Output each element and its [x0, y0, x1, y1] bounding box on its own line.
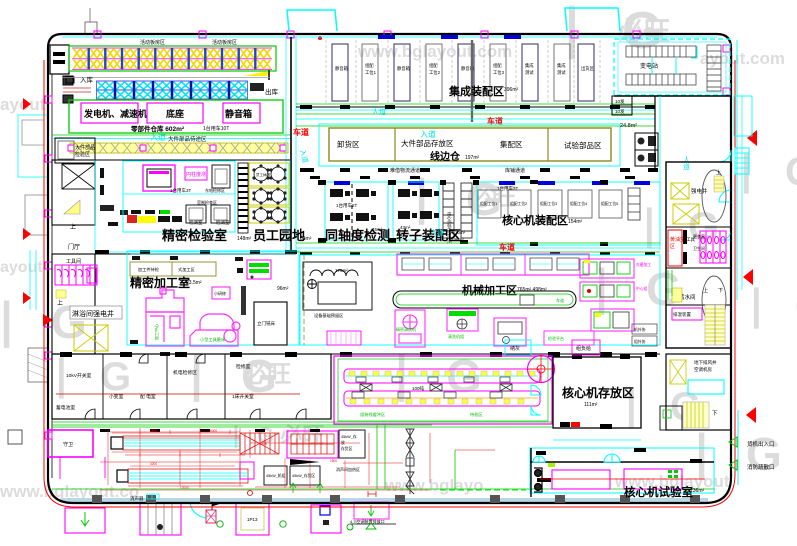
svg-text:检验平台: 检验平台 [548, 335, 564, 341]
svg-text:门厅: 门厅 [68, 243, 80, 251]
svg-text:线边仓: 线边仓 [430, 150, 461, 163]
svg-text:小研修: 小研修 [214, 290, 226, 296]
svg-text:待检区: 待检区 [470, 411, 483, 418]
svg-text:检验区: 检验区 [75, 151, 90, 158]
svg-text:组配: 组配 [429, 62, 438, 69]
svg-text:入道: 入道 [150, 132, 166, 142]
svg-text:活动板房区: 活动板房区 [140, 39, 165, 46]
svg-text:3200: 3200 [150, 462, 157, 466]
svg-text:发电机、减速机: 发电机、减速机 [83, 108, 147, 119]
svg-text:底座: 底座 [166, 108, 184, 119]
svg-text:蓄电池室: 蓄电池室 [56, 404, 75, 411]
svg-text:下: 下 [712, 410, 718, 417]
svg-text:集成: 集成 [525, 62, 534, 69]
svg-text:存货区: 存货区 [341, 446, 353, 451]
svg-text:组配工位5: 组配工位5 [601, 201, 618, 206]
svg-text:ayout: ayout [0, 259, 43, 276]
svg-text:人道: 人道 [430, 228, 444, 237]
svg-text:试验部品区: 试验部品区 [564, 140, 602, 150]
svg-text:45kW_存: 45kW_存 [341, 434, 357, 439]
svg-text:工位1: 工位1 [365, 69, 377, 75]
svg-text:24.8m²: 24.8m² [620, 123, 637, 129]
svg-text:静音箱: 静音箱 [335, 65, 349, 72]
svg-text:大件部品: 大件部品 [75, 144, 95, 151]
svg-text:工位2: 工位2 [429, 69, 441, 75]
svg-text:检修室: 检修室 [236, 363, 251, 370]
svg-text:消防疏散口: 消防疏散口 [747, 463, 775, 471]
svg-text:消声器: 消声器 [130, 495, 144, 502]
svg-text:96m²: 96m² [277, 286, 289, 292]
svg-text:组外协: 组外协 [634, 339, 646, 344]
svg-text:核心机装配区: 核心机装配区 [502, 213, 568, 227]
svg-text:工位3: 工位3 [493, 69, 505, 75]
svg-text:黄油宝: 黄油宝 [670, 236, 685, 243]
svg-text:组装线缓冲区: 组装线缓冲区 [360, 411, 385, 418]
svg-text:154m²: 154m² [568, 219, 583, 225]
svg-text:零部件仓库 602m²: 零部件仓库 602m² [130, 124, 185, 133]
svg-text:⎸G: ⎸G [754, 285, 797, 329]
svg-text:1台用车3T: 1台用车3T [170, 187, 192, 194]
svg-text:www.bglayo: www.bglayo [384, 476, 484, 495]
svg-text:检测室: 检测室 [189, 219, 203, 226]
svg-text:组配: 组配 [493, 62, 502, 69]
svg-text:车道: 车道 [487, 116, 503, 126]
svg-text:10发: 10发 [615, 98, 625, 105]
svg-text:检测室: 检测室 [216, 219, 230, 226]
svg-text:测试: 测试 [557, 69, 566, 76]
svg-text:148m²: 148m² [237, 236, 252, 242]
svg-text:10kV开关室: 10kV开关室 [66, 372, 92, 379]
svg-text:组配工位2: 组配工位2 [510, 201, 527, 206]
svg-text:ayout.com: ayout.com [700, 49, 785, 68]
svg-text:空调机房: 空调机房 [694, 366, 712, 373]
svg-text:ayout: ayout [0, 95, 46, 114]
svg-text:人道: 人道 [372, 107, 386, 116]
svg-text:加工件待检: 加工件待检 [138, 266, 160, 273]
svg-text:136m²: 136m² [690, 488, 705, 494]
svg-text:4500: 4500 [150, 429, 157, 433]
svg-text:上: 上 [703, 287, 708, 294]
svg-text:组配工位1: 组配工位1 [480, 201, 497, 206]
svg-text:入道: 入道 [420, 129, 436, 139]
svg-text:45kW_存货区: 45kW_存货区 [292, 473, 315, 478]
svg-text:中心组: 中心组 [636, 286, 648, 291]
svg-text:111m²: 111m² [584, 402, 598, 408]
svg-text:23.5m²: 23.5m² [186, 280, 202, 286]
svg-text:精密清洗机: 精密清洗机 [396, 326, 416, 332]
svg-text:员工休闲: 员工休闲 [256, 172, 270, 177]
svg-text:100吨: 100吨 [412, 385, 425, 391]
svg-text:1800: 1800 [330, 459, 337, 463]
svg-text:静音箱: 静音箱 [225, 108, 252, 119]
svg-text:纳灰: 纳灰 [510, 345, 520, 352]
svg-text:淋浴间强电井: 淋浴间强电井 [72, 309, 114, 318]
svg-text:入库: 入库 [80, 75, 94, 84]
svg-text:出货区: 出货区 [581, 65, 595, 72]
svg-text:下: 下 [718, 288, 723, 294]
svg-text:加工中心: 加工中心 [153, 324, 159, 340]
svg-text:东帕检修区: 东帕检修区 [205, 187, 225, 193]
svg-text:货机出入口: 货机出入口 [747, 440, 775, 448]
svg-text:集配区: 集配区 [500, 139, 523, 149]
svg-text:上: 上 [70, 223, 76, 231]
svg-text:円柱度测: 円柱度测 [186, 171, 206, 178]
svg-text:上: 上 [716, 169, 721, 176]
svg-text:工具间: 工具间 [66, 258, 81, 265]
svg-text:守卫: 守卫 [63, 441, 73, 448]
svg-text:组负给: 组负给 [576, 345, 591, 352]
svg-text:大件部品存放区: 大件部品存放区 [401, 138, 454, 148]
svg-text:1台用车2T: 1台用车2T [336, 202, 358, 209]
svg-text:测试: 测试 [525, 69, 534, 76]
svg-text:组配: 组配 [365, 62, 374, 69]
svg-text:静音箱: 静音箱 [397, 65, 411, 72]
svg-text:出库: 出库 [265, 87, 279, 96]
svg-text:⎸G: ⎸G [744, 150, 797, 194]
svg-text:员工园地: 员工园地 [253, 228, 305, 243]
svg-text:卸货区: 卸货区 [337, 139, 360, 149]
svg-text:必旺: 必旺 [618, 16, 670, 46]
svg-text:强电井: 强电井 [691, 187, 708, 195]
svg-text:车道: 车道 [556, 297, 564, 303]
svg-text:4.7t空调装置排放口: 4.7t空调装置排放口 [350, 518, 385, 524]
svg-text:1台用车10T: 1台用车10T [203, 125, 229, 132]
svg-text:大件部品待途区: 大件部品待途区 [168, 135, 207, 143]
svg-text:卫生间: 卫生间 [693, 245, 705, 251]
svg-text:核心机存放区: 核心机存放区 [562, 385, 634, 400]
svg-text:清洗机组: 清洗机组 [448, 333, 464, 339]
svg-text:6000: 6000 [210, 429, 217, 433]
svg-text:机外协: 机外协 [634, 327, 646, 332]
svg-text:车道: 车道 [293, 127, 309, 137]
svg-text:上: 上 [57, 299, 63, 307]
svg-text:消声间加热区: 消声间加热区 [336, 466, 360, 472]
svg-text:396m²: 396m² [504, 87, 519, 93]
svg-text:变电站: 变电站 [640, 62, 658, 70]
svg-text:人道: 人道 [683, 156, 691, 171]
svg-text:排湿装置: 排湿装置 [673, 311, 691, 318]
svg-text:1P13: 1P13 [247, 517, 258, 522]
svg-text:小型工具磨床: 小型工具磨床 [200, 336, 226, 343]
svg-text:难借物流通道: 难借物流通道 [390, 167, 420, 174]
svg-text:组配工位4: 组配工位4 [570, 201, 587, 206]
svg-text:活动板房区: 活动板房区 [212, 39, 237, 46]
svg-text:车道: 车道 [499, 242, 515, 252]
svg-text:45kW_机组: 45kW_机组 [266, 473, 286, 478]
svg-text:机械加工区: 机械加工区 [462, 283, 517, 297]
svg-text:197m²: 197m² [465, 155, 480, 161]
svg-text:63m²: 63m² [300, 236, 312, 242]
svg-text:175m²: 175m² [335, 268, 348, 273]
svg-text:设备基础预留区: 设备基础预留区 [314, 312, 343, 319]
svg-text:集成: 集成 [557, 62, 566, 69]
svg-text:库铺通道: 库铺通道 [505, 167, 525, 174]
svg-text:765m² 498m²: 765m² 498m² [517, 287, 547, 293]
svg-text:www.bglayout.com: www.bglayout.com [357, 42, 512, 61]
svg-text:式加工区: 式加工区 [178, 266, 195, 273]
svg-text:官制检查区: 官制检查区 [197, 199, 217, 205]
svg-text:同轴度检测: 同轴度检测 [325, 228, 390, 243]
svg-text:放: 放 [341, 440, 345, 445]
svg-text:区: 区 [670, 244, 675, 250]
svg-text:10发: 10发 [615, 108, 625, 115]
svg-text:组配工位3: 组配工位3 [540, 201, 557, 206]
svg-text:核心机试验室: 核心机试验室 [624, 485, 693, 499]
svg-text:立门铣床: 立门铣床 [257, 320, 275, 327]
svg-text:地下排风井: 地下排风井 [694, 359, 717, 366]
svg-text:车磨加工: 车磨加工 [636, 262, 651, 267]
svg-text:集成装配区: 集成装配区 [448, 84, 504, 98]
svg-text:更衣室: 更衣室 [693, 233, 705, 239]
svg-text:2400: 2400 [260, 442, 267, 446]
svg-text:精密检验室: 精密检验室 [162, 228, 227, 243]
svg-text:机电检修区: 机电检修区 [173, 369, 197, 376]
